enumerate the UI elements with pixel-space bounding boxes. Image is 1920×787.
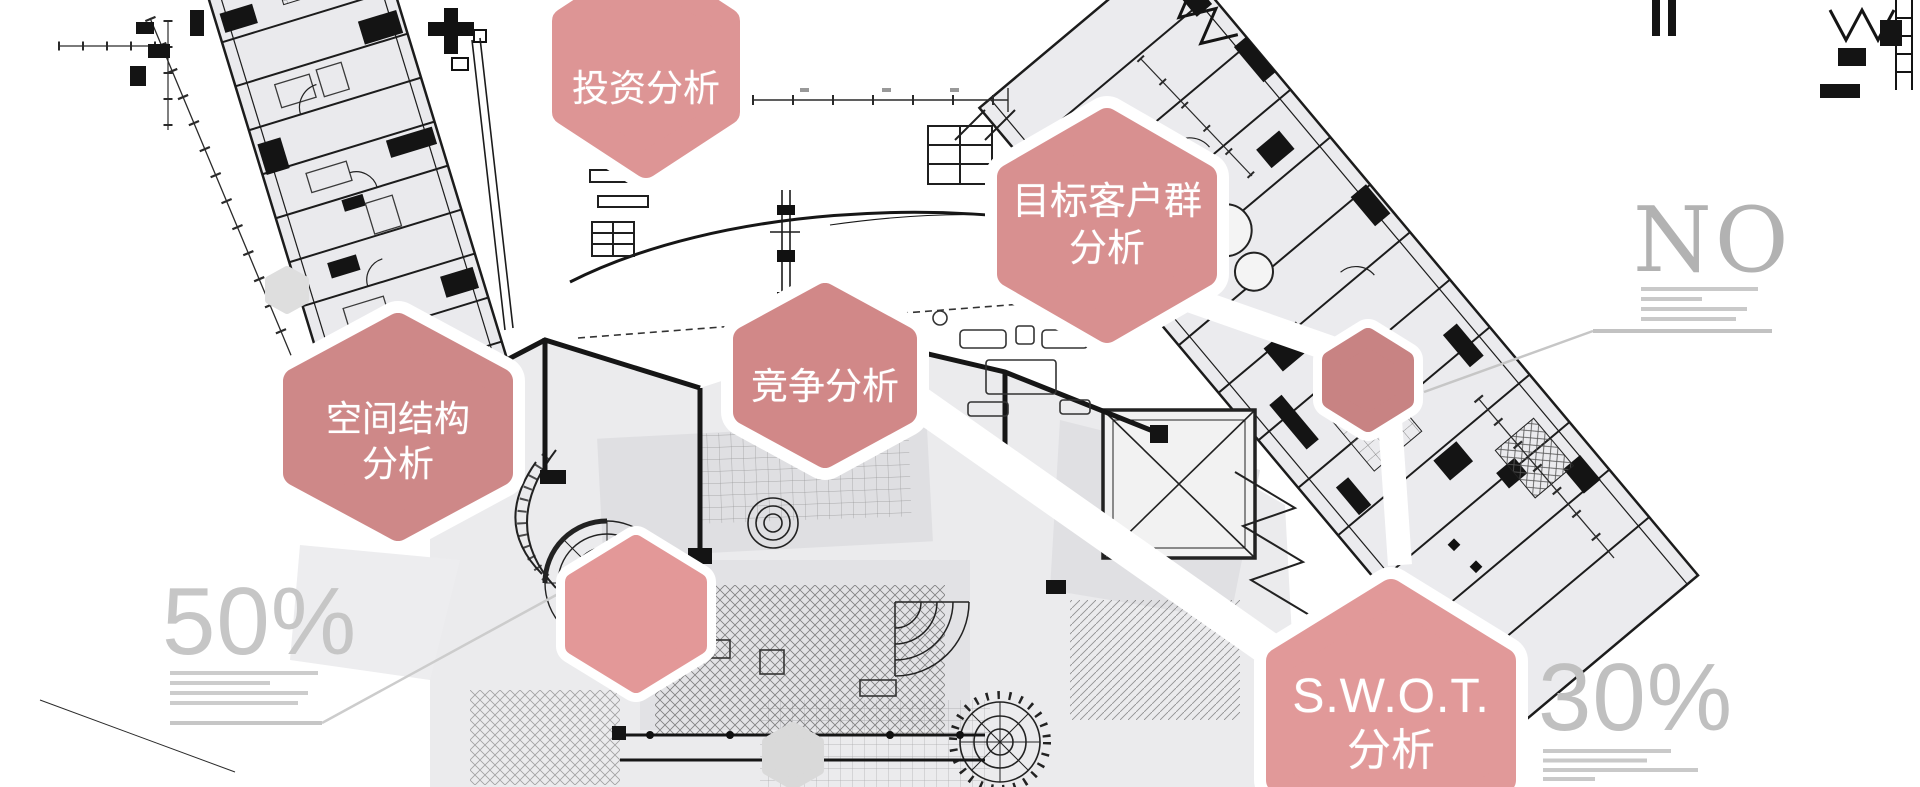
annotation-thirty-percent-text: 30%	[1538, 650, 1733, 746]
hexagon-label-investment: 投资分析	[572, 58, 720, 112]
label-line: 竞争分析	[751, 356, 899, 410]
label-line: 目标客户群	[1012, 179, 1202, 226]
annotation-no-lines	[1424, 289, 1772, 392]
label-line: S.W.O.T.	[1292, 670, 1489, 724]
hexagon-label-swot: S.W.O.T. 分析	[1292, 670, 1489, 778]
label-line: 空间结构	[326, 396, 470, 441]
hexagon-marker-bottom	[574, 544, 698, 684]
slide-canvas: 投资分析 目标客户群 分析 竞争分析 空间结构 分析 S.W.O.T. 分析 N…	[0, 0, 1920, 787]
annotation-30-lines	[1543, 751, 1698, 779]
hexagon-label-target-customer: 目标客户群 分析	[1012, 179, 1202, 273]
gray-hex-top-left	[269, 270, 305, 310]
hexagon-marker-right	[1331, 337, 1405, 423]
hexagon-label-spatial-structure: 空间结构 分析	[326, 396, 470, 486]
label-line: 投资分析	[572, 58, 720, 112]
hexagon-label-competition: 竞争分析	[751, 356, 899, 410]
gray-hex-bottom	[767, 727, 819, 785]
annotation-fifty-percent-text: 50%	[162, 574, 357, 670]
annotation-no-text: NO	[1633, 196, 1792, 286]
label-line: 分析	[326, 441, 470, 486]
label-line: 分析	[1012, 226, 1202, 273]
label-line: 分析	[1292, 724, 1489, 778]
